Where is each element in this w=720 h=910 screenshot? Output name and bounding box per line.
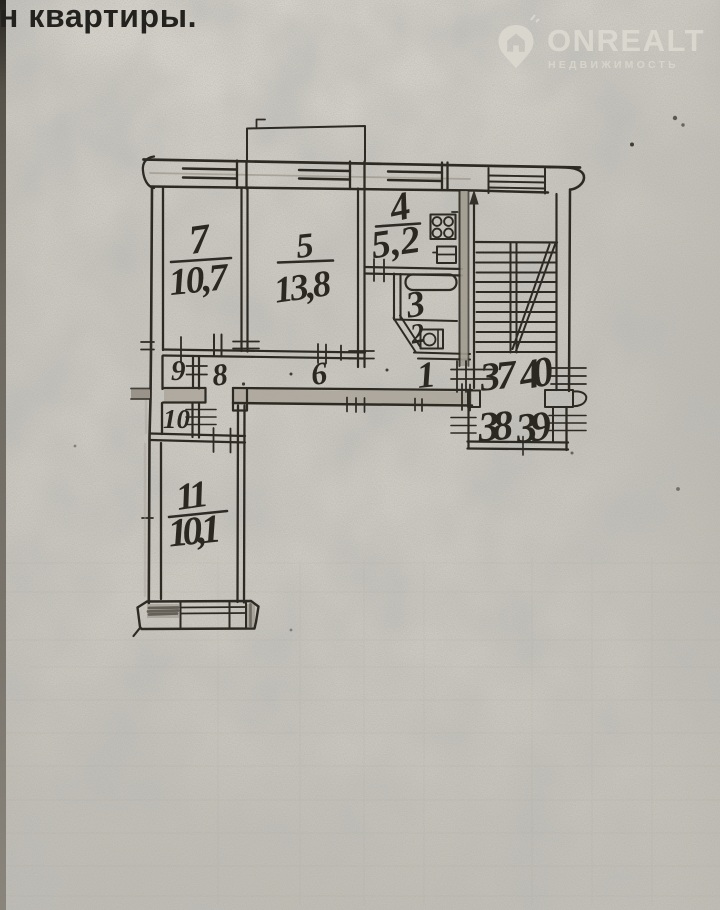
svg-text:8: 8	[210, 356, 230, 392]
svg-text:5,2: 5,2	[368, 218, 423, 267]
svg-text:НЕДВИЖИМОСТЬ: НЕДВИЖИМОСТЬ	[548, 59, 679, 71]
svg-text:7: 7	[186, 214, 214, 263]
svg-text:5: 5	[294, 225, 315, 266]
svg-text:3: 3	[402, 283, 428, 327]
svg-text:10,7: 10,7	[167, 256, 232, 304]
svg-text:9: 9	[171, 355, 186, 387]
svg-text:10: 10	[163, 404, 191, 434]
svg-text:6: 6	[309, 354, 329, 391]
svg-text:38: 38	[476, 403, 515, 451]
svg-text:ONREALT: ONREALT	[547, 23, 705, 58]
svg-text:4: 4	[384, 182, 414, 230]
svg-text:2: 2	[407, 318, 427, 351]
svg-text:39: 39	[513, 403, 554, 453]
svg-text:13,8: 13,8	[271, 263, 333, 312]
svg-text:1: 1	[415, 354, 438, 397]
svg-text:10,1: 10,1	[166, 505, 223, 555]
svg-text:37: 37	[477, 351, 520, 400]
svg-text:40: 40	[515, 348, 557, 399]
svg-text:11: 11	[173, 473, 211, 519]
